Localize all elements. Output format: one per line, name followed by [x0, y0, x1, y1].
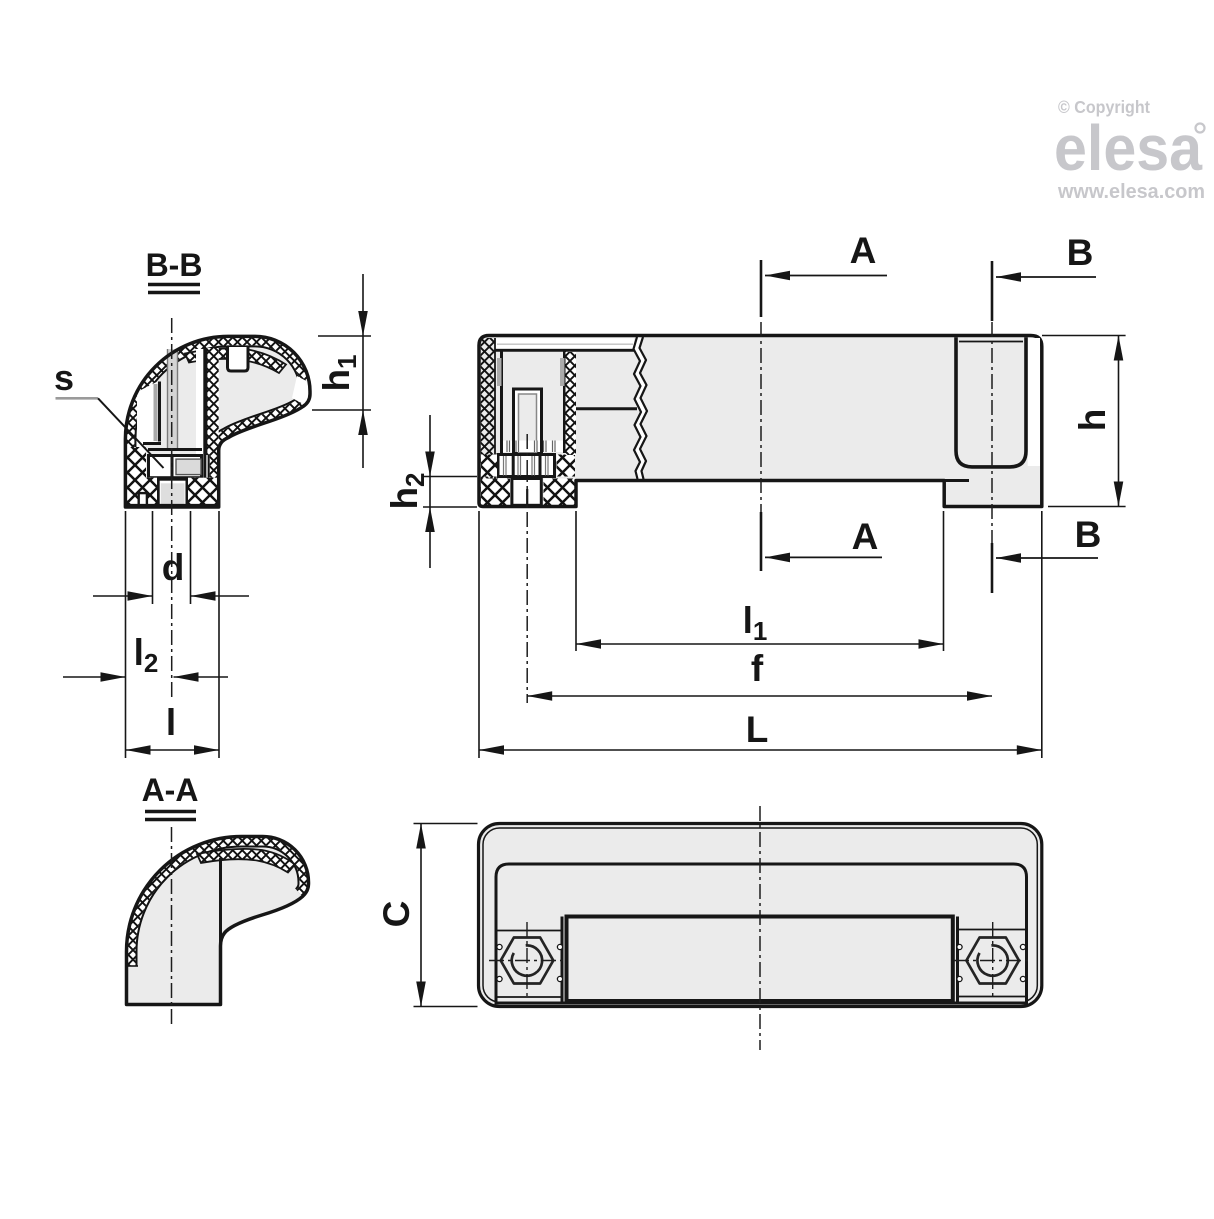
svg-text:elesa: elesa [1054, 112, 1202, 184]
svg-text:f: f [751, 648, 764, 689]
svg-text:A-A: A-A [142, 772, 199, 808]
svg-text:C: C [376, 901, 417, 928]
svg-text:B: B [1067, 232, 1094, 273]
svg-text:B: B [1075, 514, 1102, 555]
svg-text:h: h [1072, 409, 1113, 432]
svg-text:d: d [162, 547, 185, 588]
svg-text:l: l [166, 702, 176, 743]
svg-text:A: A [852, 516, 879, 557]
svg-text:s: s [54, 357, 74, 398]
svg-text:A: A [850, 230, 877, 271]
svg-text:L: L [746, 709, 769, 750]
svg-text:B-B: B-B [146, 247, 203, 283]
svg-text:www.elesa.com: www.elesa.com [1057, 181, 1205, 203]
